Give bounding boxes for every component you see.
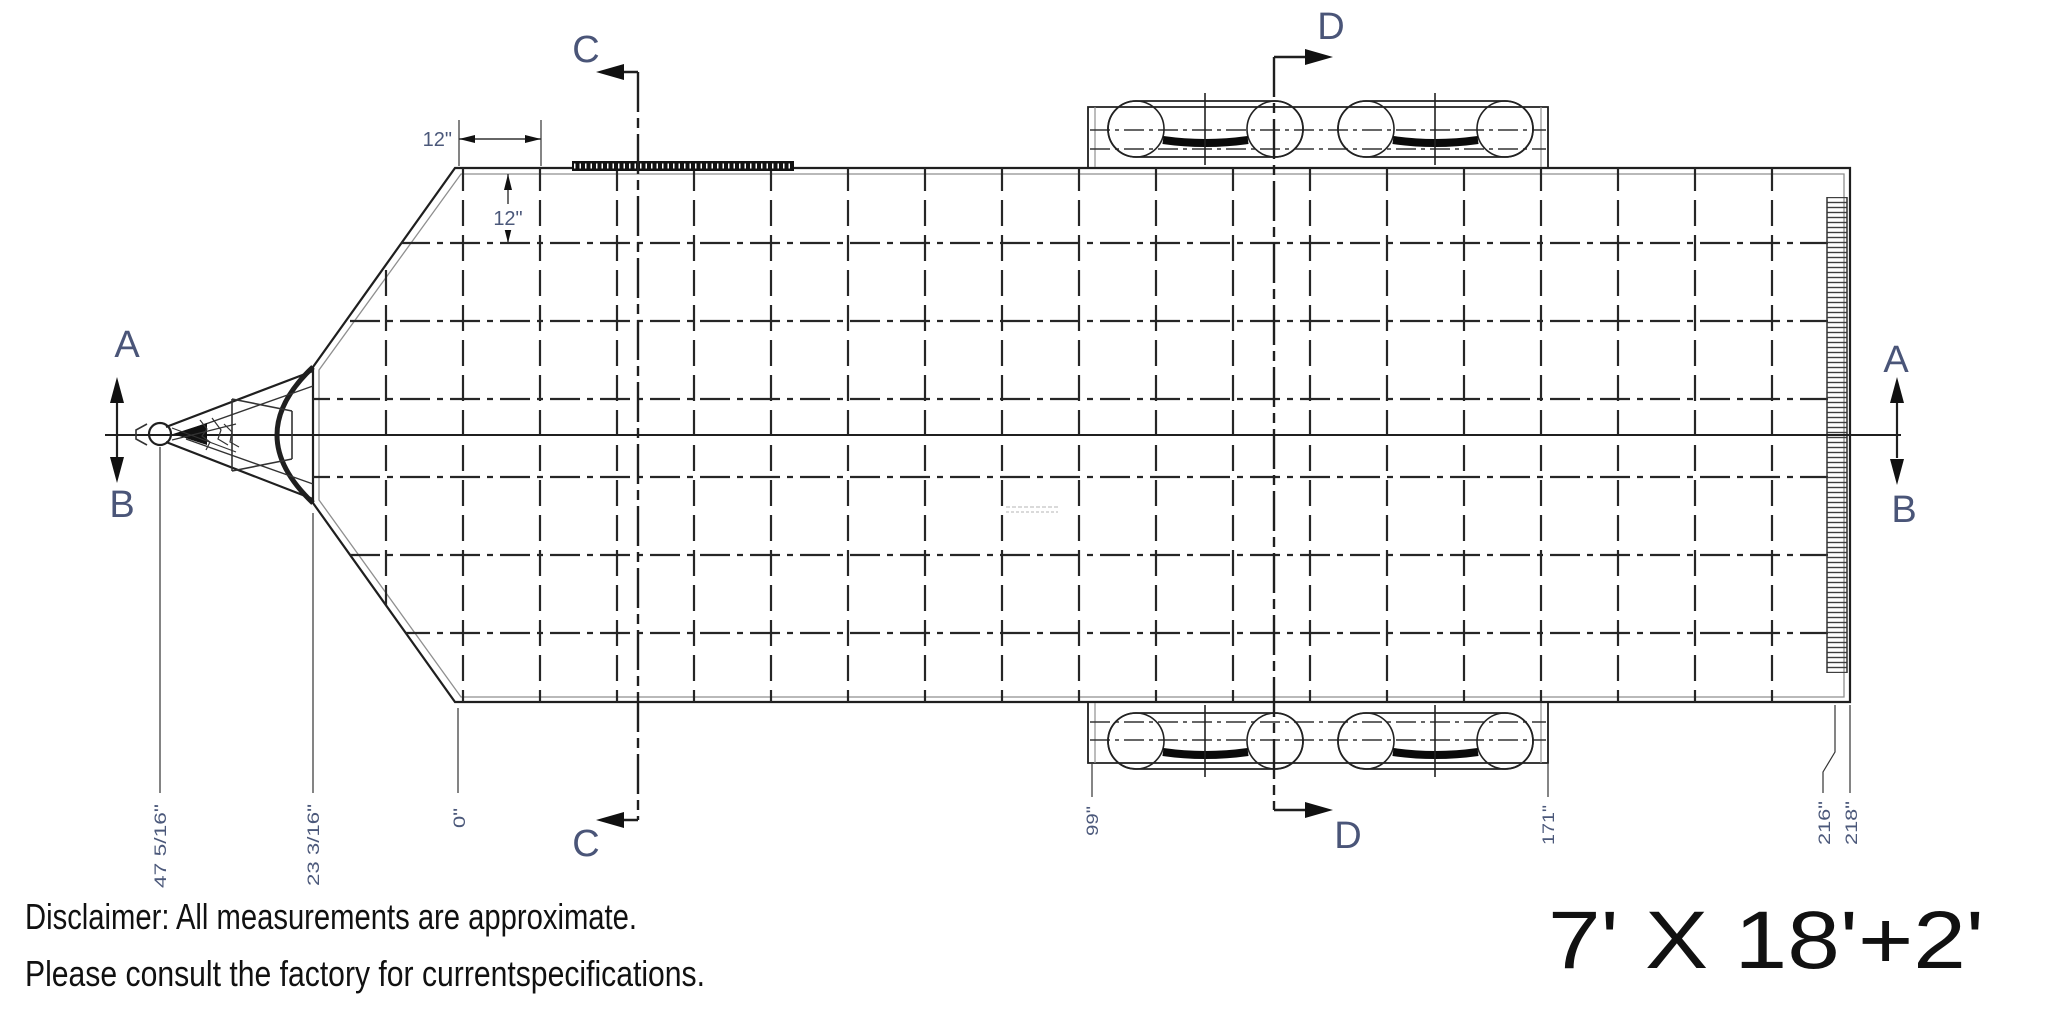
tire-rear-right <box>1338 705 1533 777</box>
dim-12-horizontal: 12" <box>423 120 541 166</box>
disclaimer-line2: Please consult the factory for currentsp… <box>25 953 705 994</box>
dim-deck-rear-label: 216" <box>1815 801 1834 845</box>
dim-overall-label: 218" <box>1842 801 1861 845</box>
section-line-c: C C <box>572 29 638 865</box>
dim-axle-front-label: 99" <box>1083 806 1102 836</box>
section-c-bottom-arrow <box>596 812 624 828</box>
trailer-top-view-drawing: C C D D A B A B 12" <box>0 0 2048 1024</box>
footer: Disclaimer: All measurements are approxi… <box>25 895 1984 994</box>
grid-horizontals <box>300 243 1828 633</box>
view-arrow-up-left <box>110 377 124 403</box>
view-arrow-down-left <box>110 457 124 483</box>
dim-nose-label: 23 3/16" <box>304 804 323 886</box>
coupler-latch <box>173 423 207 445</box>
view-label-b-left: B <box>109 484 134 526</box>
illegible-watermark <box>1006 507 1060 512</box>
disclaimer-line1: Disclaimer: All measurements are approxi… <box>25 896 637 937</box>
section-line-d: D D <box>1274 6 1362 857</box>
section-label-d-bottom: D <box>1334 815 1361 857</box>
model-size-title: 7' X 18'+2' <box>1548 895 1984 986</box>
view-label-a-left: A <box>114 324 140 366</box>
section-label-d-top: D <box>1317 6 1344 48</box>
dim-12-vertical: 12" <box>492 174 524 243</box>
section-d-bottom-arrow <box>1305 802 1333 818</box>
section-d-top-arrow <box>1305 49 1333 65</box>
dim-12-horizontal-label: 12" <box>423 129 452 151</box>
dim-axle-rear-label: 171" <box>1539 805 1558 845</box>
view-arrow-down-right <box>1890 459 1904 485</box>
station-dimensions: 47 5/16" 23 3/16" 0" 99" 171" 216" 218" <box>151 447 1861 888</box>
section-c-top-arrow <box>596 64 624 80</box>
view-arrows-left: A B <box>109 324 140 526</box>
view-label-b-right: B <box>1891 489 1916 531</box>
side-step-plate <box>572 161 794 171</box>
section-label-c-bottom: C <box>572 823 599 865</box>
tire-rear-left <box>1338 93 1533 165</box>
dim-deck-front-label: 0" <box>450 808 469 828</box>
trailer-floorplan-page: C C D D A B A B 12" <box>0 0 2048 1024</box>
dim-coupler-label: 47 5/16" <box>151 804 170 888</box>
dim-12-vertical-label: 12" <box>493 208 522 230</box>
section-label-c-top: C <box>572 29 599 71</box>
view-label-a-right: A <box>1883 339 1909 381</box>
